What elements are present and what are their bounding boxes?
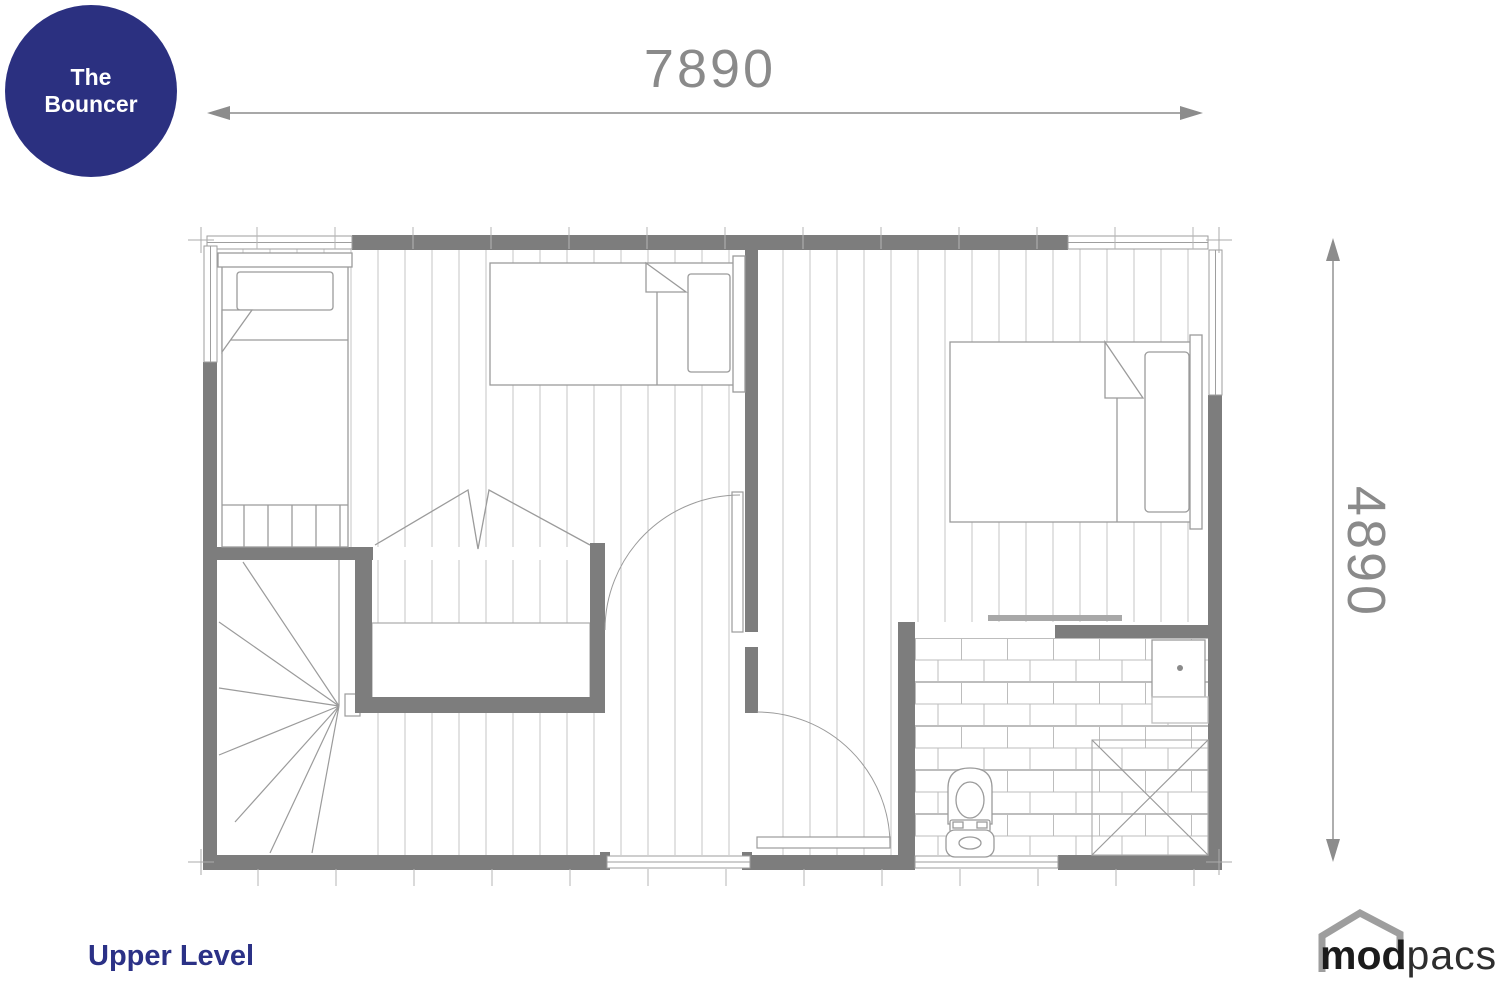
plan-badge-line2: Bouncer — [44, 91, 137, 118]
bed-double-icon — [950, 335, 1202, 529]
modpacs-logo: modpacs — [1316, 906, 1500, 996]
bed-single-middle-icon — [490, 256, 745, 392]
bathroom-sliding-door — [988, 615, 1122, 621]
logo-wordmark: modpacs — [1320, 932, 1497, 979]
plan-badge: The Bouncer — [5, 5, 177, 177]
plan-badge-line1: The — [71, 64, 112, 91]
toilet-icon — [946, 768, 994, 857]
bed-single-left-icon — [218, 253, 352, 547]
floor-level-label: Upper Level — [88, 940, 254, 973]
logo-text-regular: pacs — [1407, 932, 1498, 978]
logo-text-bold: mod — [1320, 932, 1407, 978]
floor-plan-page: The Bouncer 7890 4890 Upper Level modpac… — [0, 0, 1500, 1000]
hall-door-leaf — [757, 837, 890, 848]
door-hinge-gap — [744, 632, 759, 647]
bedroom-door-leaf — [732, 492, 743, 632]
height-dimension-label: 4890 — [1337, 452, 1397, 652]
width-dimension-label: 7890 — [610, 38, 810, 100]
floor-plan-drawing — [0, 0, 1500, 1000]
width-dimension-line — [207, 106, 1203, 120]
vanity-basin-icon — [1152, 640, 1208, 723]
